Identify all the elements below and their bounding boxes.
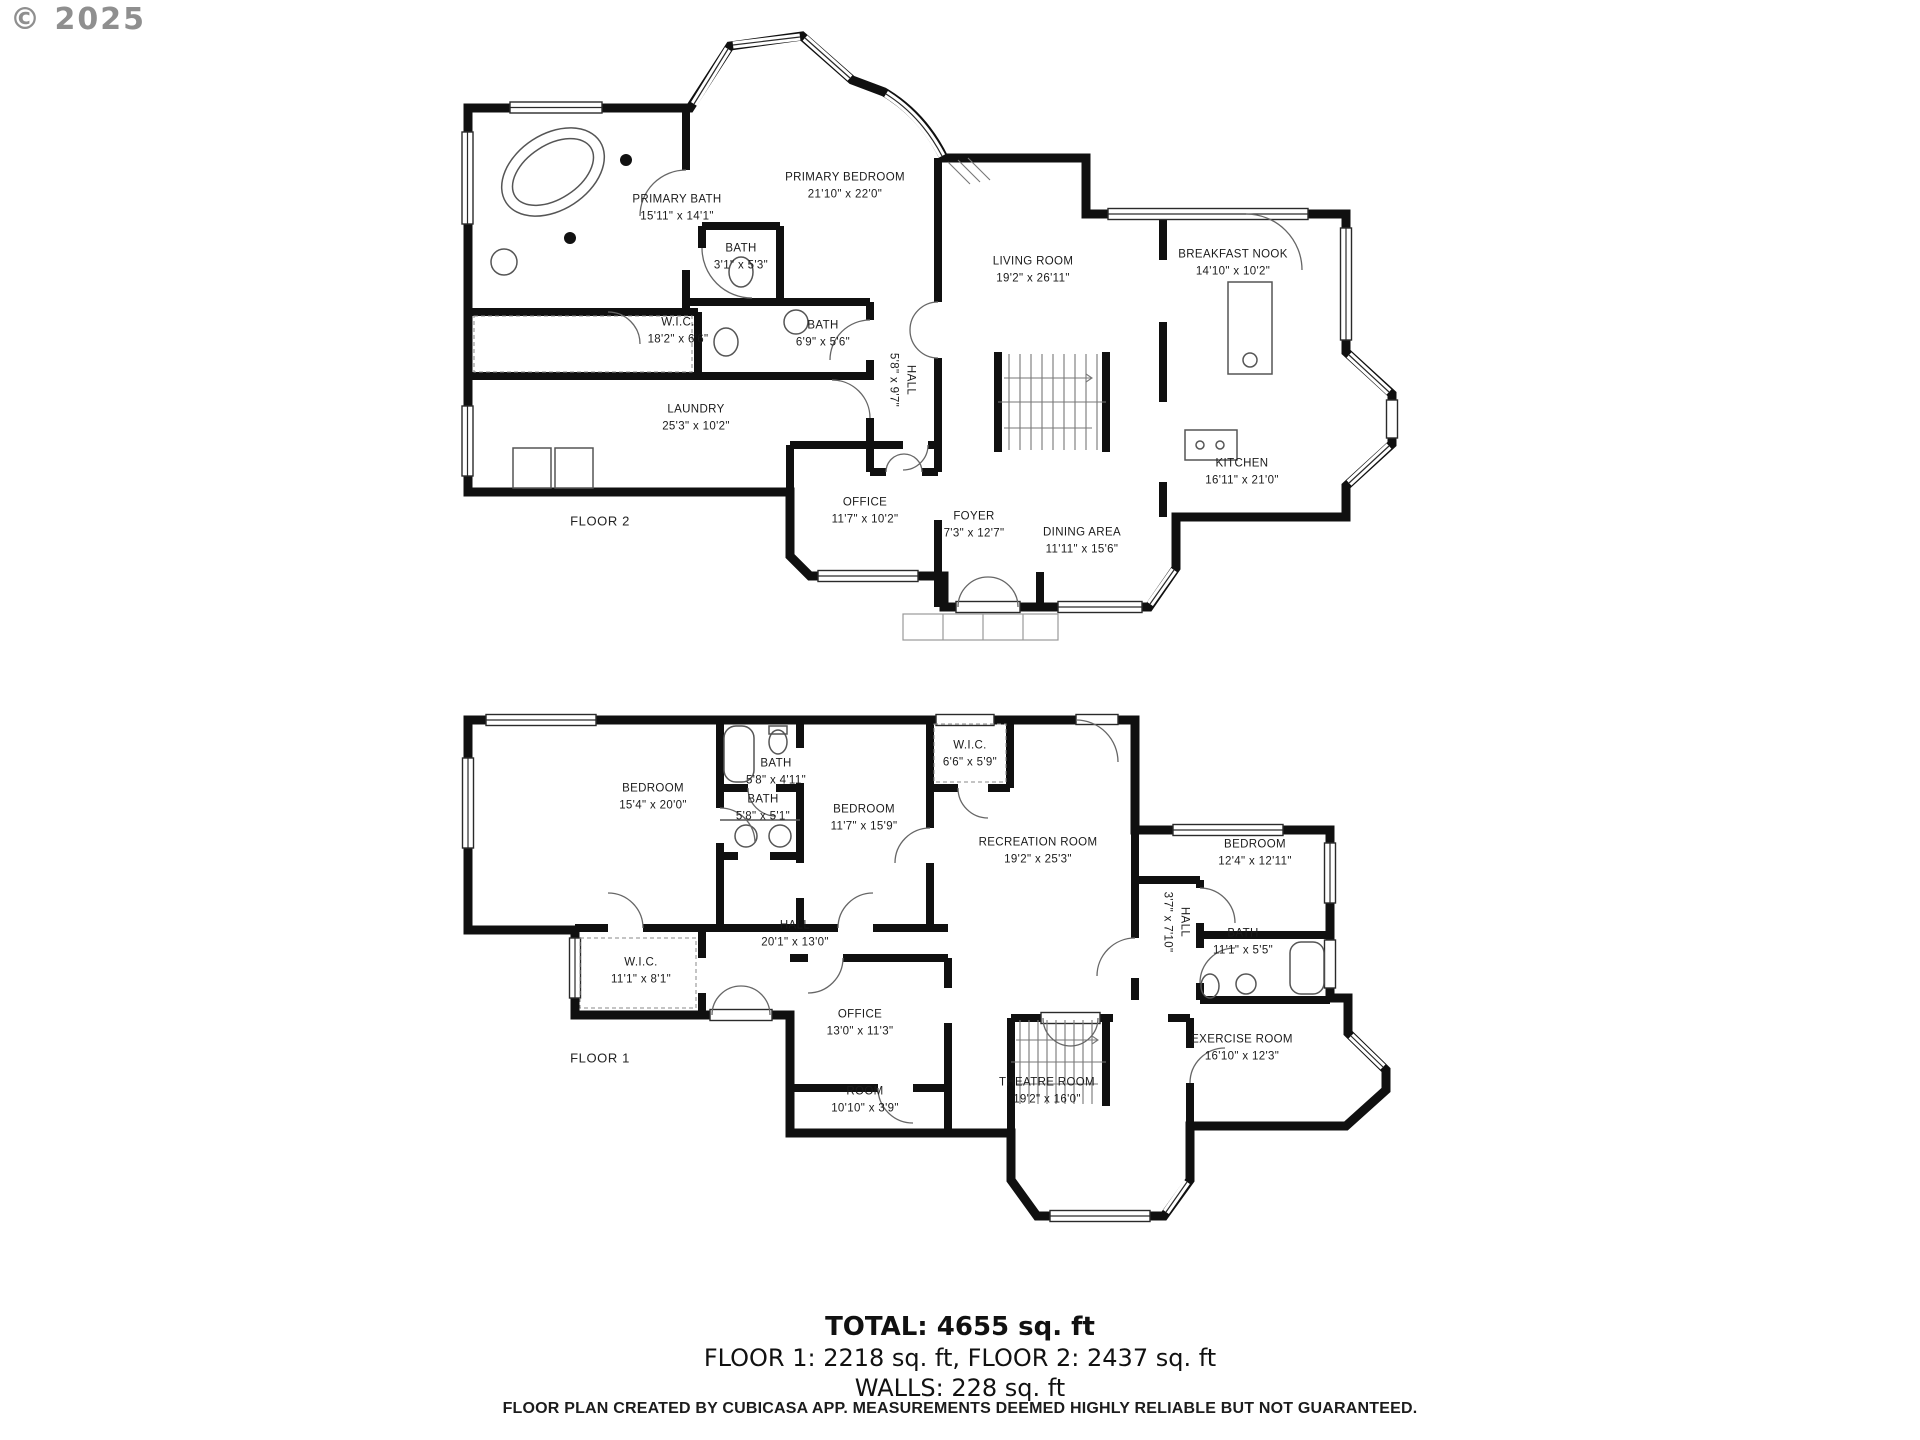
room-label-bath-small-f2: BATH3'1" x 5'3" (714, 240, 768, 273)
room-label-laundry: LAUNDRY25'3" x 10'2" (662, 401, 730, 434)
floor-areas-text: FLOOR 1: 2218 sq. ft, FLOOR 2: 2437 sq. … (0, 1344, 1920, 1372)
room-label-wic-small-f1: W.I.C.6'6" x 5'9" (943, 737, 997, 770)
room-label-bedroom-1: BEDROOM15'4" x 20'0" (619, 780, 687, 813)
floor1-plan-drawing (458, 688, 1398, 1248)
room-label-foyer: FOYER7'3" x 12'7" (944, 508, 1005, 541)
room-label-living-room: LIVING ROOM19'2" x 26'11" (993, 253, 1074, 286)
room-label-primary-bedroom: PRIMARY BEDROOM21'10" x 22'0" (785, 169, 905, 202)
room-label-wic-f1: W.I.C.11'1" x 8'1" (611, 954, 671, 987)
disclaimer-text: FLOOR PLAN CREATED BY CUBICASA APP. MEAS… (0, 1400, 1920, 1418)
room-label-bedroom-2: BEDROOM11'7" x 15'9" (831, 801, 898, 834)
room-label-wic-f2: W.I.C.18'2" x 6'6" (648, 314, 709, 347)
floor2-tag: FLOOR 2 (570, 514, 630, 529)
copyright-watermark: © 2025 (10, 2, 146, 37)
room-label-bedroom-3: BEDROOM12'4" x 12'11" (1218, 836, 1292, 869)
floor2-entry-porch (903, 614, 1058, 640)
room-label-exercise-room: EXERCISE ROOM16'10" x 12'3" (1191, 1031, 1293, 1064)
room-label-bath-lower-f1: BATH5'8" x 5'1" (736, 791, 790, 824)
floor1-tag: FLOOR 1 (570, 1051, 630, 1066)
room-label-office-f1: OFFICE13'0" x 11'3" (827, 1006, 894, 1039)
floor2-plan-drawing (458, 20, 1428, 645)
room-label-room: ROOM10'10" x 3'9" (831, 1083, 899, 1116)
total-area-text: TOTAL: 4655 sq. ft (0, 1312, 1920, 1342)
room-label-hall-small-f1: HALL3'7" x 7'10" (1159, 892, 1192, 953)
walls-area-text: WALLS: 228 sq. ft (0, 1374, 1920, 1402)
room-label-hall-f1: HALL20'1" x 13'0" (761, 917, 829, 950)
room-label-recreation-room: RECREATION ROOM19'2" x 25'3" (979, 834, 1098, 867)
room-label-kitchen: KITCHEN16'11" x 21'0" (1205, 455, 1279, 488)
floor-plan-page: © 2025 (0, 0, 1920, 1440)
room-label-office-f2: OFFICE11'7" x 10'2" (832, 494, 899, 527)
room-label-breakfast-nook: BREAKFAST NOOK14'10" x 10'2" (1178, 246, 1288, 279)
room-label-dining-area: DINING AREA11'11" x 15'6" (1043, 524, 1121, 557)
room-label-hall-f2: HALL5'8" x 9'7" (885, 353, 918, 407)
room-label-theatre-room: THEATRE ROOM19'2" x 16'0" (999, 1074, 1095, 1107)
room-label-bath-f2: BATH6'9" x 5'6" (796, 317, 850, 350)
room-label-bath-upper-f1: BATH5'8" x 4'11" (746, 755, 806, 788)
room-label-bath-f1: BATH11'1" x 5'5" (1213, 925, 1273, 958)
room-label-primary-bath: PRIMARY BATH15'11" x 14'1" (632, 191, 721, 224)
